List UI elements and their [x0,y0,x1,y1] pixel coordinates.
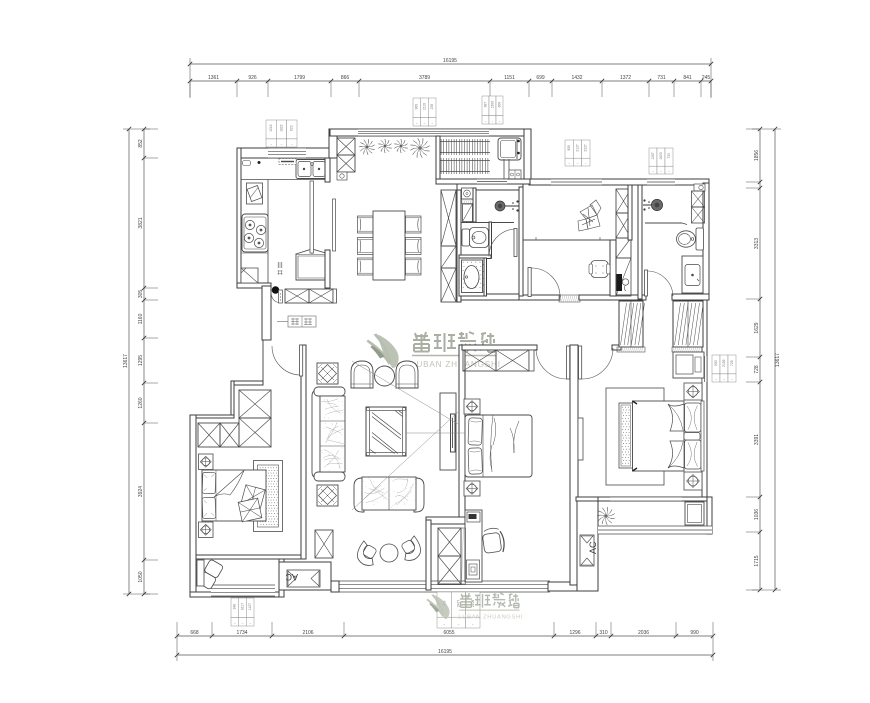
svg-text:239: 239 [430,104,434,110]
svg-text:2110: 2110 [422,103,426,110]
svg-text:~: ~ [492,119,494,123]
svg-text:1050: 1050 [138,571,144,582]
svg-text:1799: 1799 [294,75,305,81]
svg-text:~: ~ [458,623,460,627]
svg-text:~: ~ [234,621,236,625]
svg-text:6055: 6055 [443,630,454,636]
svg-text:3313: 3313 [754,238,760,249]
svg-text:~: ~ [249,621,251,625]
svg-text:~: ~ [485,119,487,123]
svg-text:841: 841 [683,75,692,81]
svg-text:2327: 2327 [584,144,588,152]
svg-text:3821: 3821 [138,217,144,228]
svg-text:~: ~ [443,623,445,627]
svg-text:~: ~ [585,161,587,165]
svg-text:1296: 1296 [569,630,580,636]
svg-text:3391: 3391 [754,434,760,445]
svg-text:~: ~ [723,377,725,381]
svg-text:AC: AC [285,572,298,582]
svg-text:~: ~ [424,121,426,125]
svg-text:1372: 1372 [620,75,631,81]
svg-text:13617: 13617 [123,354,129,368]
svg-text:1734: 1734 [236,630,247,636]
svg-text:3924: 3924 [138,486,144,497]
svg-text:1260: 1260 [138,397,144,408]
svg-text:~: ~ [242,621,244,625]
svg-text:1216: 1216 [269,124,273,132]
svg-text:1036: 1036 [754,509,760,520]
svg-text:1295: 1295 [138,355,144,366]
svg-text:13617: 13617 [775,353,781,367]
svg-text:~: ~ [281,142,283,146]
svg-text:1629: 1629 [754,322,760,333]
svg-text:1287: 1287 [651,152,655,160]
svg-text:3789: 3789 [419,75,430,81]
svg-text:~: ~ [568,161,570,165]
svg-text:305: 305 [138,290,144,299]
svg-text:1160: 1160 [138,313,144,324]
svg-text:16195: 16195 [438,649,452,655]
svg-text:960: 960 [415,104,419,110]
svg-text:AC: AC [588,541,598,554]
svg-text:2159: 2159 [722,359,726,367]
svg-text:728: 728 [754,365,760,374]
svg-text:623: 623 [290,125,294,131]
svg-text:728: 728 [730,360,734,366]
svg-text:2036: 2036 [638,630,649,636]
svg-text:1623: 1623 [659,152,663,160]
svg-text:900: 900 [567,145,571,151]
svg-text:245: 245 [702,75,711,81]
svg-text:~: ~ [715,377,717,381]
svg-text:~: ~ [499,119,501,123]
svg-text:1127: 1127 [248,603,252,610]
svg-text:1856: 1856 [754,150,760,161]
svg-text:852: 852 [138,139,144,148]
svg-text:~: ~ [652,169,654,173]
svg-text:310: 310 [599,630,608,636]
svg-text:987: 987 [483,102,487,108]
svg-text:16195: 16195 [443,58,457,64]
svg-text:990: 990 [690,630,699,636]
svg-text:~: ~ [270,142,272,146]
svg-text:LUBAN ZHUANGSHI: LUBAN ZHUANGSHI [411,360,501,369]
svg-text:~: ~ [291,142,293,146]
svg-text:866: 866 [341,75,350,81]
svg-text:948: 948 [233,604,237,610]
svg-text:1617: 1617 [240,603,244,611]
svg-text:~: ~ [660,169,662,173]
svg-text:~: ~ [668,169,670,173]
svg-text:2127: 2127 [575,144,579,152]
svg-text:733: 733 [667,153,671,159]
svg-text:1361: 1361 [208,75,219,81]
svg-text:~: ~ [416,121,418,125]
svg-text:1822: 1822 [279,124,283,132]
svg-text:1432: 1432 [571,75,582,81]
svg-text:~: ~ [472,623,474,627]
svg-text:1151: 1151 [504,75,515,81]
svg-text:668: 668 [190,630,199,636]
svg-text:~: ~ [577,161,579,165]
svg-text:600: 600 [497,102,501,108]
svg-text:1715: 1715 [754,555,760,566]
svg-text:1500: 1500 [490,101,494,109]
svg-text:2106: 2106 [302,630,313,636]
svg-text:699: 699 [536,75,545,81]
svg-text:926: 926 [248,75,257,81]
svg-text:~: ~ [731,377,733,381]
svg-text:731: 731 [657,75,666,81]
svg-text:900: 900 [714,360,718,366]
svg-text:~: ~ [431,121,433,125]
